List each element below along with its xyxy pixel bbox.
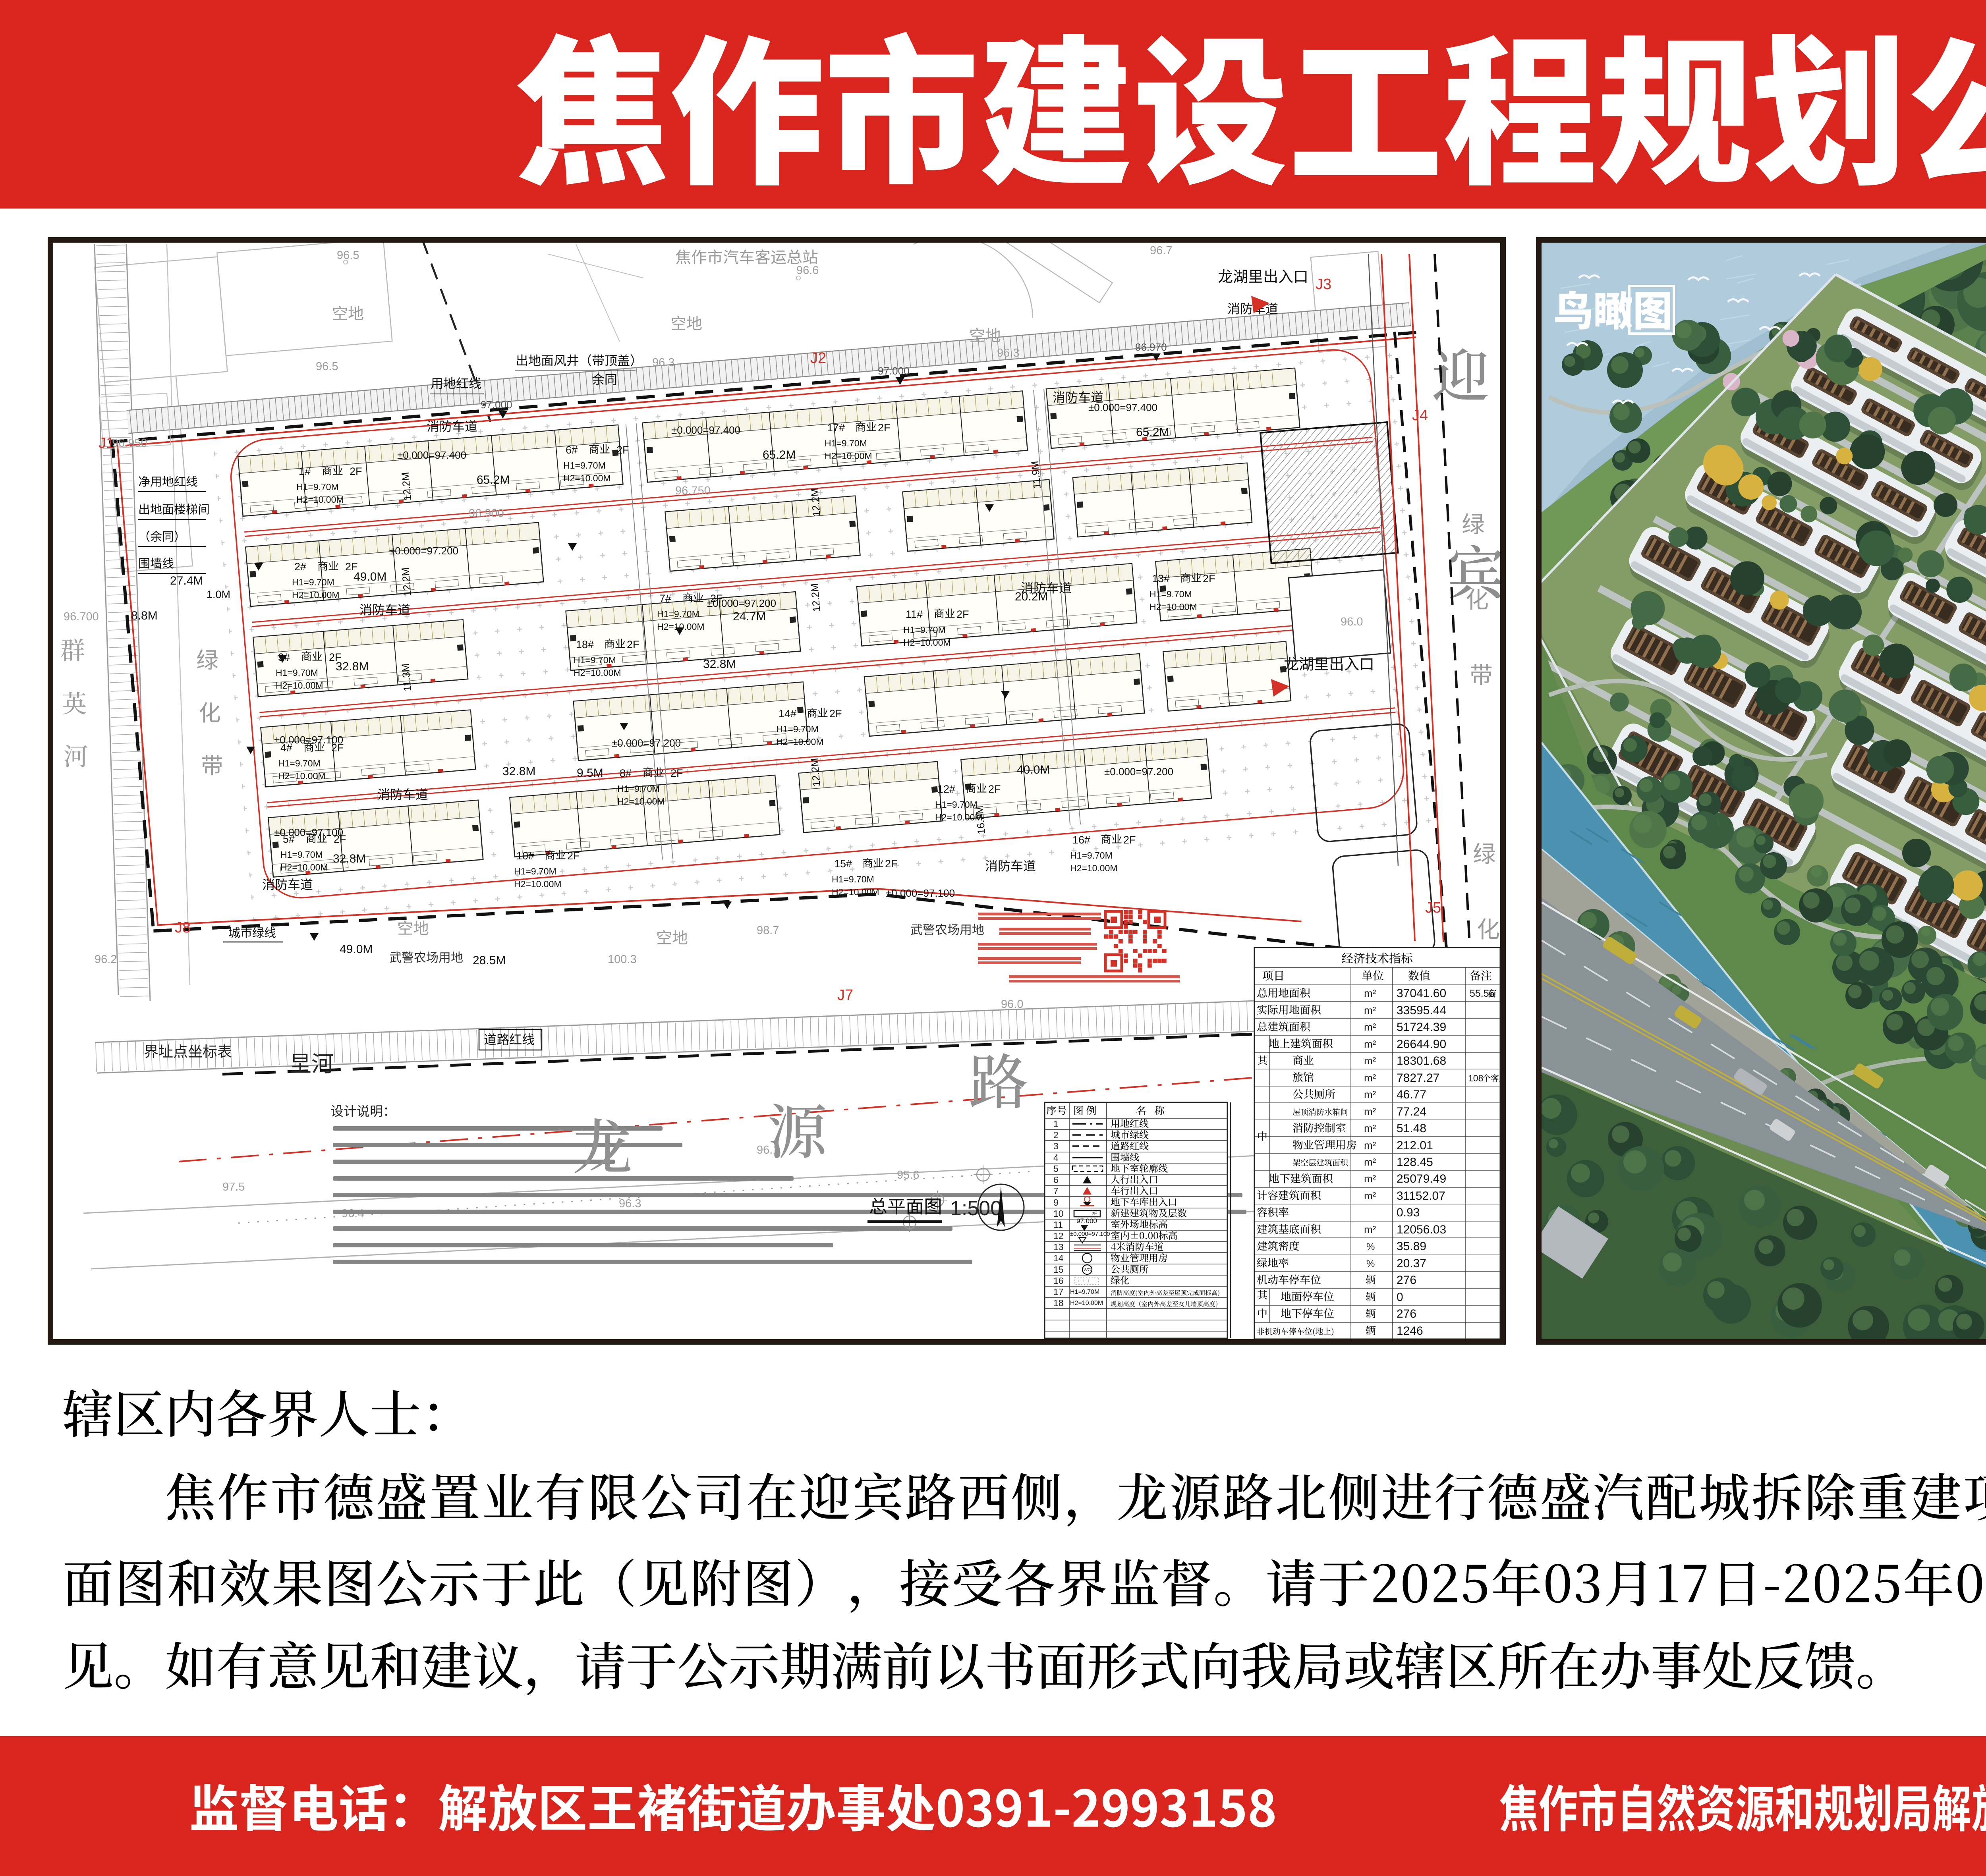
svg-text:m²: m² [1364, 987, 1376, 999]
svg-text:2F: 2F [885, 858, 898, 870]
svg-text:12: 12 [1053, 1231, 1064, 1241]
svg-text:40.0M: 40.0M [1017, 763, 1050, 776]
svg-text:51.48: 51.48 [1397, 1122, 1426, 1135]
svg-text:H2=10.00M: H2=10.00M [574, 668, 621, 678]
svg-text:97.5: 97.5 [222, 1181, 245, 1193]
svg-text:35.89: 35.89 [1397, 1240, 1426, 1253]
svg-text:H1=9.70M: H1=9.70M [292, 577, 334, 587]
svg-text:H1=9.70M: H1=9.70M [276, 668, 318, 678]
svg-text:H1=9.70M: H1=9.70M [657, 609, 699, 619]
svg-text:12.2M: 12.2M [808, 757, 823, 787]
svg-text:37041.60: 37041.60 [1397, 987, 1446, 1000]
svg-text:m²: m² [1364, 1021, 1376, 1033]
svg-text:J2: J2 [810, 350, 826, 367]
svg-text:H2=10.00M: H2=10.00M [832, 887, 879, 897]
svg-text:96.700: 96.700 [64, 610, 99, 623]
svg-text:32.8M: 32.8M [336, 660, 369, 673]
svg-text:+ + +: + + + [1077, 1278, 1090, 1284]
svg-text:J8: J8 [175, 919, 191, 936]
svg-text:2F: 2F [829, 708, 842, 720]
svg-text:16.2M: 16.2M [973, 805, 987, 835]
svg-text:7#: 7# [659, 593, 671, 604]
svg-text:65.2M: 65.2M [477, 473, 510, 486]
svg-text:96.7: 96.7 [1150, 244, 1172, 257]
svg-text:H2=10.00M: H2=10.00M [563, 473, 611, 483]
svg-text:H2=10.00M: H2=10.00M [903, 637, 951, 648]
svg-text:m²: m² [1364, 1038, 1376, 1050]
svg-text:m²: m² [1364, 1055, 1376, 1067]
svg-text:2F: 2F [878, 422, 891, 434]
svg-text:96.900: 96.900 [469, 507, 504, 520]
svg-text:8.8M: 8.8M [131, 609, 158, 622]
svg-text:98.7: 98.7 [757, 924, 779, 937]
svg-text:±0.000=97.200: ±0.000=97.200 [389, 545, 458, 557]
svg-text:13#: 13# [1152, 573, 1170, 585]
svg-text:5: 5 [1053, 1164, 1059, 1174]
svg-text:15: 15 [1053, 1264, 1064, 1275]
svg-text:0: 0 [1397, 1291, 1403, 1304]
svg-text:4: 4 [1053, 1152, 1059, 1163]
svg-text:46.77: 46.77 [1397, 1088, 1426, 1101]
svg-text:14#: 14# [779, 708, 796, 720]
svg-text:m²: m² [1364, 1122, 1376, 1134]
svg-text:H2=10.00M: H2=10.00M [1149, 602, 1197, 612]
svg-text:H1=9.70M: H1=9.70M [563, 460, 606, 471]
svg-text:%: % [1366, 1258, 1375, 1269]
svg-text:3#: 3# [278, 651, 290, 663]
svg-text:96.0: 96.0 [1341, 616, 1363, 628]
svg-text:H2=10.00M: H2=10.00M [825, 451, 872, 461]
svg-text:2: 2 [1053, 1130, 1059, 1140]
svg-text:11#: 11# [906, 608, 923, 620]
svg-text:2#: 2# [294, 561, 306, 573]
svg-text:%: % [1366, 1241, 1375, 1252]
svg-text:12.2M: 12.2M [399, 471, 413, 501]
svg-text:1:500: 1:500 [950, 1197, 1002, 1220]
svg-text:276: 276 [1397, 1274, 1416, 1287]
svg-text:108: 108 [1468, 1073, 1483, 1083]
svg-text:J4: J4 [1412, 407, 1428, 424]
svg-text:H2=10.00M: H2=10.00M [1070, 1300, 1103, 1307]
svg-text:H1=9.70M: H1=9.70M [903, 625, 946, 635]
svg-text:276: 276 [1397, 1307, 1416, 1320]
svg-text:16#: 16# [1072, 834, 1090, 846]
svg-text:2F: 2F [1092, 1211, 1097, 1216]
svg-text:9.5M: 9.5M [577, 766, 603, 780]
svg-text:18301.68: 18301.68 [1397, 1054, 1446, 1067]
svg-text:J5: J5 [1425, 899, 1441, 916]
svg-text:±0.000=97.400: ±0.000=97.400 [397, 449, 466, 461]
svg-text:H2=10.00M: H2=10.00M [280, 862, 328, 872]
svg-text:H2=10.00M: H2=10.00M [776, 737, 824, 747]
svg-text:1#: 1# [299, 465, 311, 477]
svg-text:1.0M: 1.0M [207, 589, 230, 600]
svg-text:±0.000=97.400: ±0.000=97.400 [1088, 401, 1157, 413]
svg-text:H2=10.00M: H2=10.00M [617, 796, 665, 807]
svg-text:96.2: 96.2 [95, 953, 117, 966]
svg-text:m²: m² [1364, 1156, 1376, 1168]
svg-text:11.3M: 11.3M [399, 663, 413, 692]
svg-text:65.2M: 65.2M [763, 448, 796, 461]
svg-text:33595.44: 33595.44 [1397, 1004, 1446, 1017]
svg-text:2F: 2F [627, 639, 639, 650]
svg-text:±0.000=97.200: ±0.000=97.200 [707, 597, 776, 609]
svg-text:H2=10.00M: H2=10.00M [1070, 863, 1118, 873]
svg-text:96.750: 96.750 [675, 484, 711, 497]
svg-text:2F: 2F [1203, 573, 1215, 585]
svg-text:96.970: 96.970 [1135, 341, 1167, 353]
svg-text:51724.39: 51724.39 [1397, 1021, 1446, 1034]
svg-text:8#: 8# [620, 767, 632, 779]
svg-text:m²: m² [1364, 1004, 1376, 1016]
svg-text:18#: 18# [576, 639, 594, 650]
svg-text:16: 16 [1053, 1276, 1064, 1286]
svg-text:H2=10.00M: H2=10.00M [657, 621, 705, 632]
svg-text:12.2M: 12.2M [808, 487, 823, 517]
svg-text:55.56: 55.56 [1470, 988, 1495, 999]
svg-text:±0.000=97.100: ±0.000=97.100 [1070, 1231, 1110, 1237]
svg-text:96.5: 96.5 [337, 249, 359, 262]
svg-text:m²: m² [1364, 1139, 1376, 1151]
svg-text:32.8M: 32.8M [502, 765, 535, 778]
svg-text:31152.07: 31152.07 [1397, 1189, 1445, 1202]
svg-text:100.3: 100.3 [608, 953, 637, 966]
svg-text:3: 3 [1053, 1141, 1059, 1151]
svg-text:96.3: 96.3 [997, 347, 1019, 359]
svg-text:H2=10.00M: H2=10.00M [278, 771, 326, 781]
svg-text:m²: m² [1364, 1089, 1376, 1100]
svg-text:0.93: 0.93 [1397, 1206, 1420, 1219]
svg-text:2F: 2F [956, 608, 969, 620]
svg-text:m²: m² [1364, 1072, 1376, 1084]
svg-text:2F: 2F [350, 465, 362, 477]
svg-text:27.4M: 27.4M [170, 574, 203, 587]
svg-text:49.0M: 49.0M [340, 943, 373, 956]
svg-text:212.01: 212.01 [1397, 1139, 1433, 1152]
svg-text:m²: m² [1364, 1190, 1376, 1202]
svg-text:H1=9.70M: H1=9.70M [1070, 1289, 1099, 1295]
svg-text:7: 7 [1053, 1186, 1059, 1196]
svg-text:2F: 2F [616, 444, 629, 456]
svg-text:H1=9.70M: H1=9.70M [776, 724, 819, 734]
svg-text:32.8M: 32.8M [333, 852, 366, 865]
svg-text:6: 6 [1053, 1175, 1059, 1185]
svg-text:±0.000=97.400: ±0.000=97.400 [671, 424, 740, 436]
svg-text:96.0: 96.0 [1001, 998, 1023, 1011]
svg-text:H1=9.70M: H1=9.70M [1149, 589, 1192, 599]
svg-text:97.000: 97.000 [481, 399, 512, 411]
svg-text:9: 9 [1053, 1197, 1059, 1208]
svg-text:H2=10.00M: H2=10.00M [514, 879, 562, 889]
svg-text:1: 1 [1053, 1119, 1059, 1129]
svg-text:15#: 15# [834, 858, 852, 870]
svg-text:10#: 10# [516, 850, 534, 862]
svg-text:65.2M: 65.2M [1136, 426, 1169, 439]
svg-text:11: 11 [1053, 1220, 1063, 1230]
svg-text:96.950: 96.950 [112, 437, 147, 450]
svg-text:95.6: 95.6 [897, 1169, 919, 1181]
svg-text:26644.90: 26644.90 [1397, 1038, 1446, 1051]
svg-text:H2=10.00M: H2=10.00M [292, 590, 340, 600]
svg-text:128.45: 128.45 [1397, 1156, 1433, 1169]
svg-text:97.000: 97.000 [878, 365, 910, 377]
svg-text:±0.000=97.100: ±0.000=97.100 [274, 826, 343, 838]
svg-text:20.37: 20.37 [1397, 1257, 1426, 1270]
svg-text:96.6: 96.6 [796, 264, 819, 277]
svg-text:2F: 2F [1123, 834, 1136, 846]
svg-text:H2=10.00M: H2=10.00M [276, 680, 323, 691]
svg-text:6#: 6# [566, 444, 578, 456]
svg-text:96.5: 96.5 [316, 360, 338, 373]
svg-text:18: 18 [1053, 1298, 1064, 1308]
svg-text:49.0M: 49.0M [354, 570, 386, 583]
svg-text:H1=9.70M: H1=9.70M [514, 866, 556, 876]
svg-text:28.5M: 28.5M [473, 954, 506, 967]
svg-text:1246: 1246 [1397, 1324, 1423, 1338]
svg-text:H1=9.70M: H1=9.70M [617, 784, 660, 794]
svg-text:2F: 2F [988, 783, 1001, 795]
svg-text:24.7M: 24.7M [733, 610, 766, 623]
svg-text:17#: 17# [827, 422, 845, 434]
svg-text:±0.000=97.200: ±0.000=97.200 [612, 737, 681, 749]
svg-text:11.9M: 11.9M [1029, 460, 1043, 489]
svg-text:H1=9.70M: H1=9.70M [574, 655, 616, 665]
svg-text:H1=9.70M: H1=9.70M [278, 758, 321, 768]
svg-text:12056.03: 12056.03 [1397, 1223, 1446, 1236]
svg-text:±0.000=97.200: ±0.000=97.200 [1104, 766, 1173, 778]
svg-text:12.2M: 12.2M [808, 583, 823, 612]
svg-text:±0.000=97.100: ±0.000=97.100 [886, 887, 955, 899]
svg-text:J7: J7 [837, 987, 853, 1004]
svg-text:17: 17 [1053, 1287, 1064, 1297]
svg-text:H1=9.70M: H1=9.70M [280, 849, 323, 860]
svg-text:96.3: 96.3 [652, 356, 674, 369]
svg-text:H1=9.70M: H1=9.70M [296, 482, 339, 492]
svg-text:77.24: 77.24 [1397, 1105, 1426, 1118]
svg-text:12.2M: 12.2M [399, 567, 413, 596]
svg-text:H1=9.70M: H1=9.70M [832, 874, 874, 884]
svg-text:25079.49: 25079.49 [1397, 1172, 1446, 1185]
svg-text:J3: J3 [1316, 276, 1331, 293]
svg-text:2F: 2F [670, 767, 683, 779]
svg-text:m²: m² [1364, 1173, 1376, 1185]
svg-text:14: 14 [1053, 1253, 1064, 1263]
svg-text:10: 10 [1053, 1208, 1064, 1219]
svg-text:96.3: 96.3 [619, 1197, 641, 1210]
svg-text:H1=9.70M: H1=9.70M [1070, 850, 1113, 861]
svg-text:±0.000=97.100: ±0.000=97.100 [274, 734, 343, 746]
svg-text:H1=9.70M: H1=9.70M [825, 438, 867, 448]
svg-text:13: 13 [1053, 1242, 1064, 1252]
svg-text:97.000: 97.000 [1076, 1217, 1097, 1225]
svg-text:m²: m² [1364, 1106, 1376, 1117]
svg-text:H1=9.70M: H1=9.70M [935, 799, 978, 810]
svg-text:WC: WC [1084, 1268, 1091, 1272]
svg-text:m²: m² [1364, 1224, 1376, 1235]
svg-text:2F: 2F [567, 850, 580, 862]
svg-text:H2=10.00M: H2=10.00M [296, 494, 344, 505]
svg-text:32.8M: 32.8M [703, 658, 736, 671]
svg-text:12#: 12# [937, 783, 955, 795]
svg-text:7827.27: 7827.27 [1397, 1071, 1439, 1085]
